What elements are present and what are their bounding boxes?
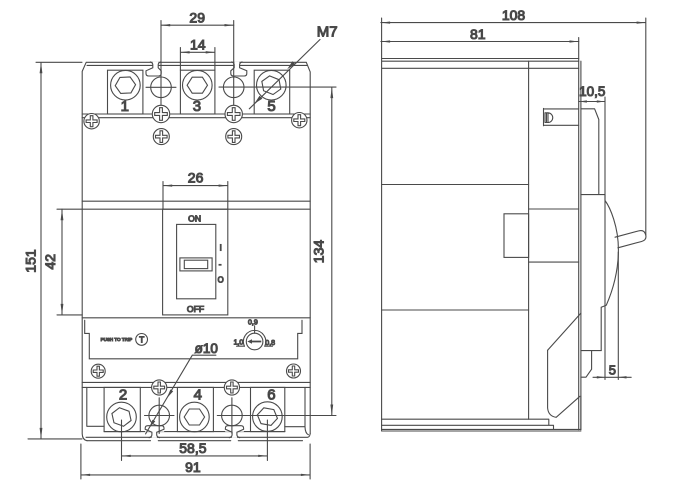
svg-text:91: 91	[185, 459, 201, 475]
svg-text:81: 81	[470, 26, 486, 42]
svg-text:1: 1	[121, 98, 129, 115]
svg-text:-: -	[219, 260, 222, 269]
svg-text:ø10: ø10	[195, 341, 218, 356]
svg-text:29: 29	[189, 9, 205, 25]
svg-text:5: 5	[609, 362, 616, 377]
svg-text:6: 6	[267, 387, 275, 404]
svg-text:1,0: 1,0	[234, 339, 244, 346]
svg-text:4: 4	[194, 386, 202, 403]
svg-text:58,5: 58,5	[179, 440, 206, 456]
svg-text:3: 3	[193, 98, 201, 115]
svg-text:14: 14	[190, 36, 206, 52]
svg-text:151: 151	[23, 249, 39, 273]
svg-text:108: 108	[502, 7, 526, 23]
svg-text:5: 5	[267, 98, 275, 115]
svg-text:I: I	[220, 244, 222, 253]
svg-text:134: 134	[310, 240, 326, 264]
svg-text:OFF: OFF	[187, 304, 204, 314]
svg-text:10,5: 10,5	[579, 84, 605, 99]
svg-text:PUSH TO TRIP: PUSH TO TRIP	[101, 337, 133, 342]
svg-text:ON: ON	[188, 213, 201, 223]
svg-text:T: T	[139, 335, 144, 344]
svg-text:0,9: 0,9	[248, 320, 258, 327]
svg-text:42: 42	[42, 254, 58, 270]
svg-text:2: 2	[119, 386, 127, 403]
svg-text:26: 26	[188, 170, 204, 186]
svg-text:M7: M7	[317, 23, 338, 40]
svg-text:O: O	[218, 276, 224, 285]
